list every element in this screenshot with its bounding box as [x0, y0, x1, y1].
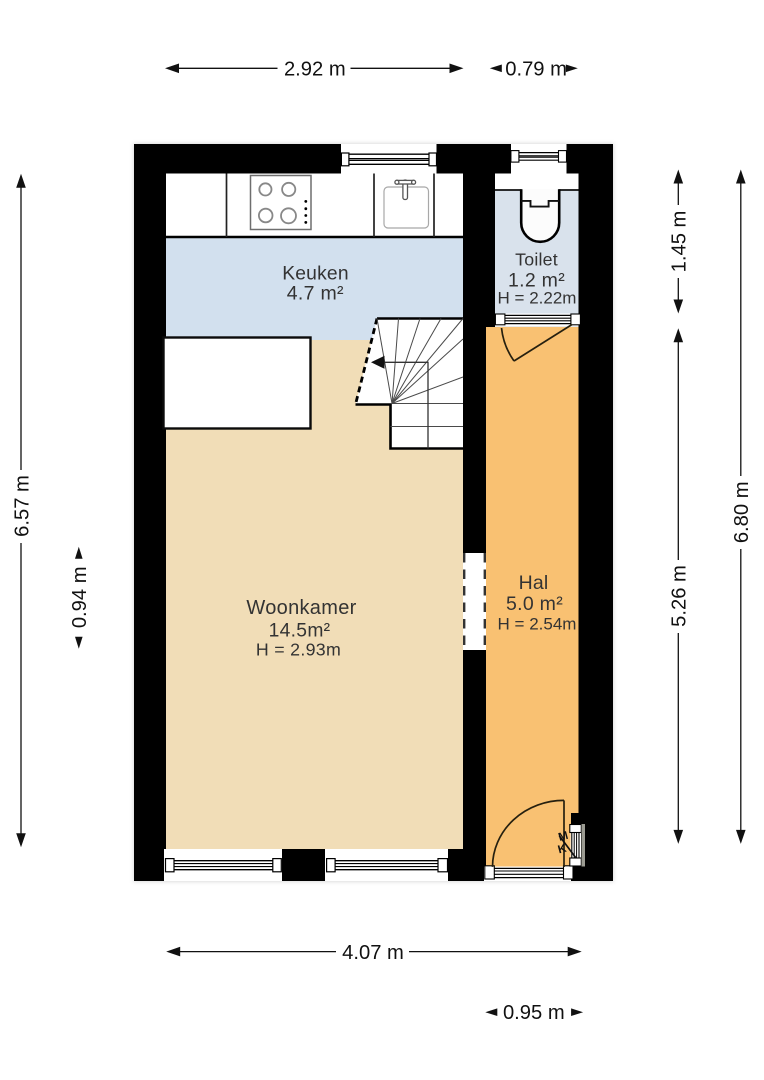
svg-text:H = 2.22m: H = 2.22m [498, 288, 577, 307]
svg-text:14.5m²: 14.5m² [269, 620, 331, 641]
svg-text:H = 2.54m: H = 2.54m [498, 614, 577, 633]
svg-text:0.79 m: 0.79 m [505, 59, 567, 81]
svg-text:6.80 m: 6.80 m [731, 481, 753, 543]
svg-text:4.07 m: 4.07 m [342, 942, 404, 964]
svg-text:Toilet: Toilet [515, 250, 558, 270]
svg-text:6.57 m: 6.57 m [12, 475, 34, 537]
svg-text:5.0 m²: 5.0 m² [506, 593, 563, 615]
svg-text:5.26 m: 5.26 m [669, 565, 691, 627]
svg-text:1.45 m: 1.45 m [669, 211, 691, 273]
svg-text:0.94 m: 0.94 m [69, 566, 91, 628]
svg-text:2.92 m: 2.92 m [284, 59, 346, 81]
svg-text:4.7 m²: 4.7 m² [287, 283, 344, 305]
svg-text:H = 2.93m: H = 2.93m [256, 640, 341, 660]
svg-text:Hal: Hal [519, 572, 549, 594]
svg-text:0.95 m: 0.95 m [503, 1002, 565, 1024]
svg-text:Keuken: Keuken [282, 264, 349, 285]
svg-text:Woonkamer: Woonkamer [246, 597, 356, 619]
